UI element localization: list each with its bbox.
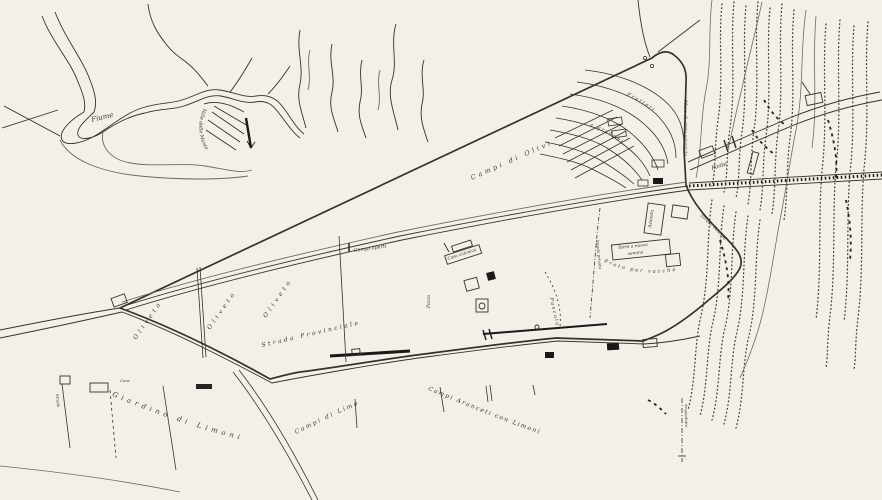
building-filled (545, 352, 554, 358)
building-filled (607, 343, 619, 351)
paper-background (0, 0, 882, 500)
grove-block (196, 384, 212, 389)
boundary-wall-label: Muro di cinta orientale (682, 99, 688, 156)
scanned-map-page: Fiume Valle delle Monte Campi di Olivi F… (0, 0, 882, 500)
houses-label: Case (120, 378, 130, 383)
terrace-building-filled (653, 178, 663, 184)
aqueduct-label: Acquedotto (684, 403, 689, 428)
estate-map: Fiume Valle delle Monte Campi di Olivi F… (0, 0, 882, 500)
well-label: Pozzo (426, 295, 432, 309)
